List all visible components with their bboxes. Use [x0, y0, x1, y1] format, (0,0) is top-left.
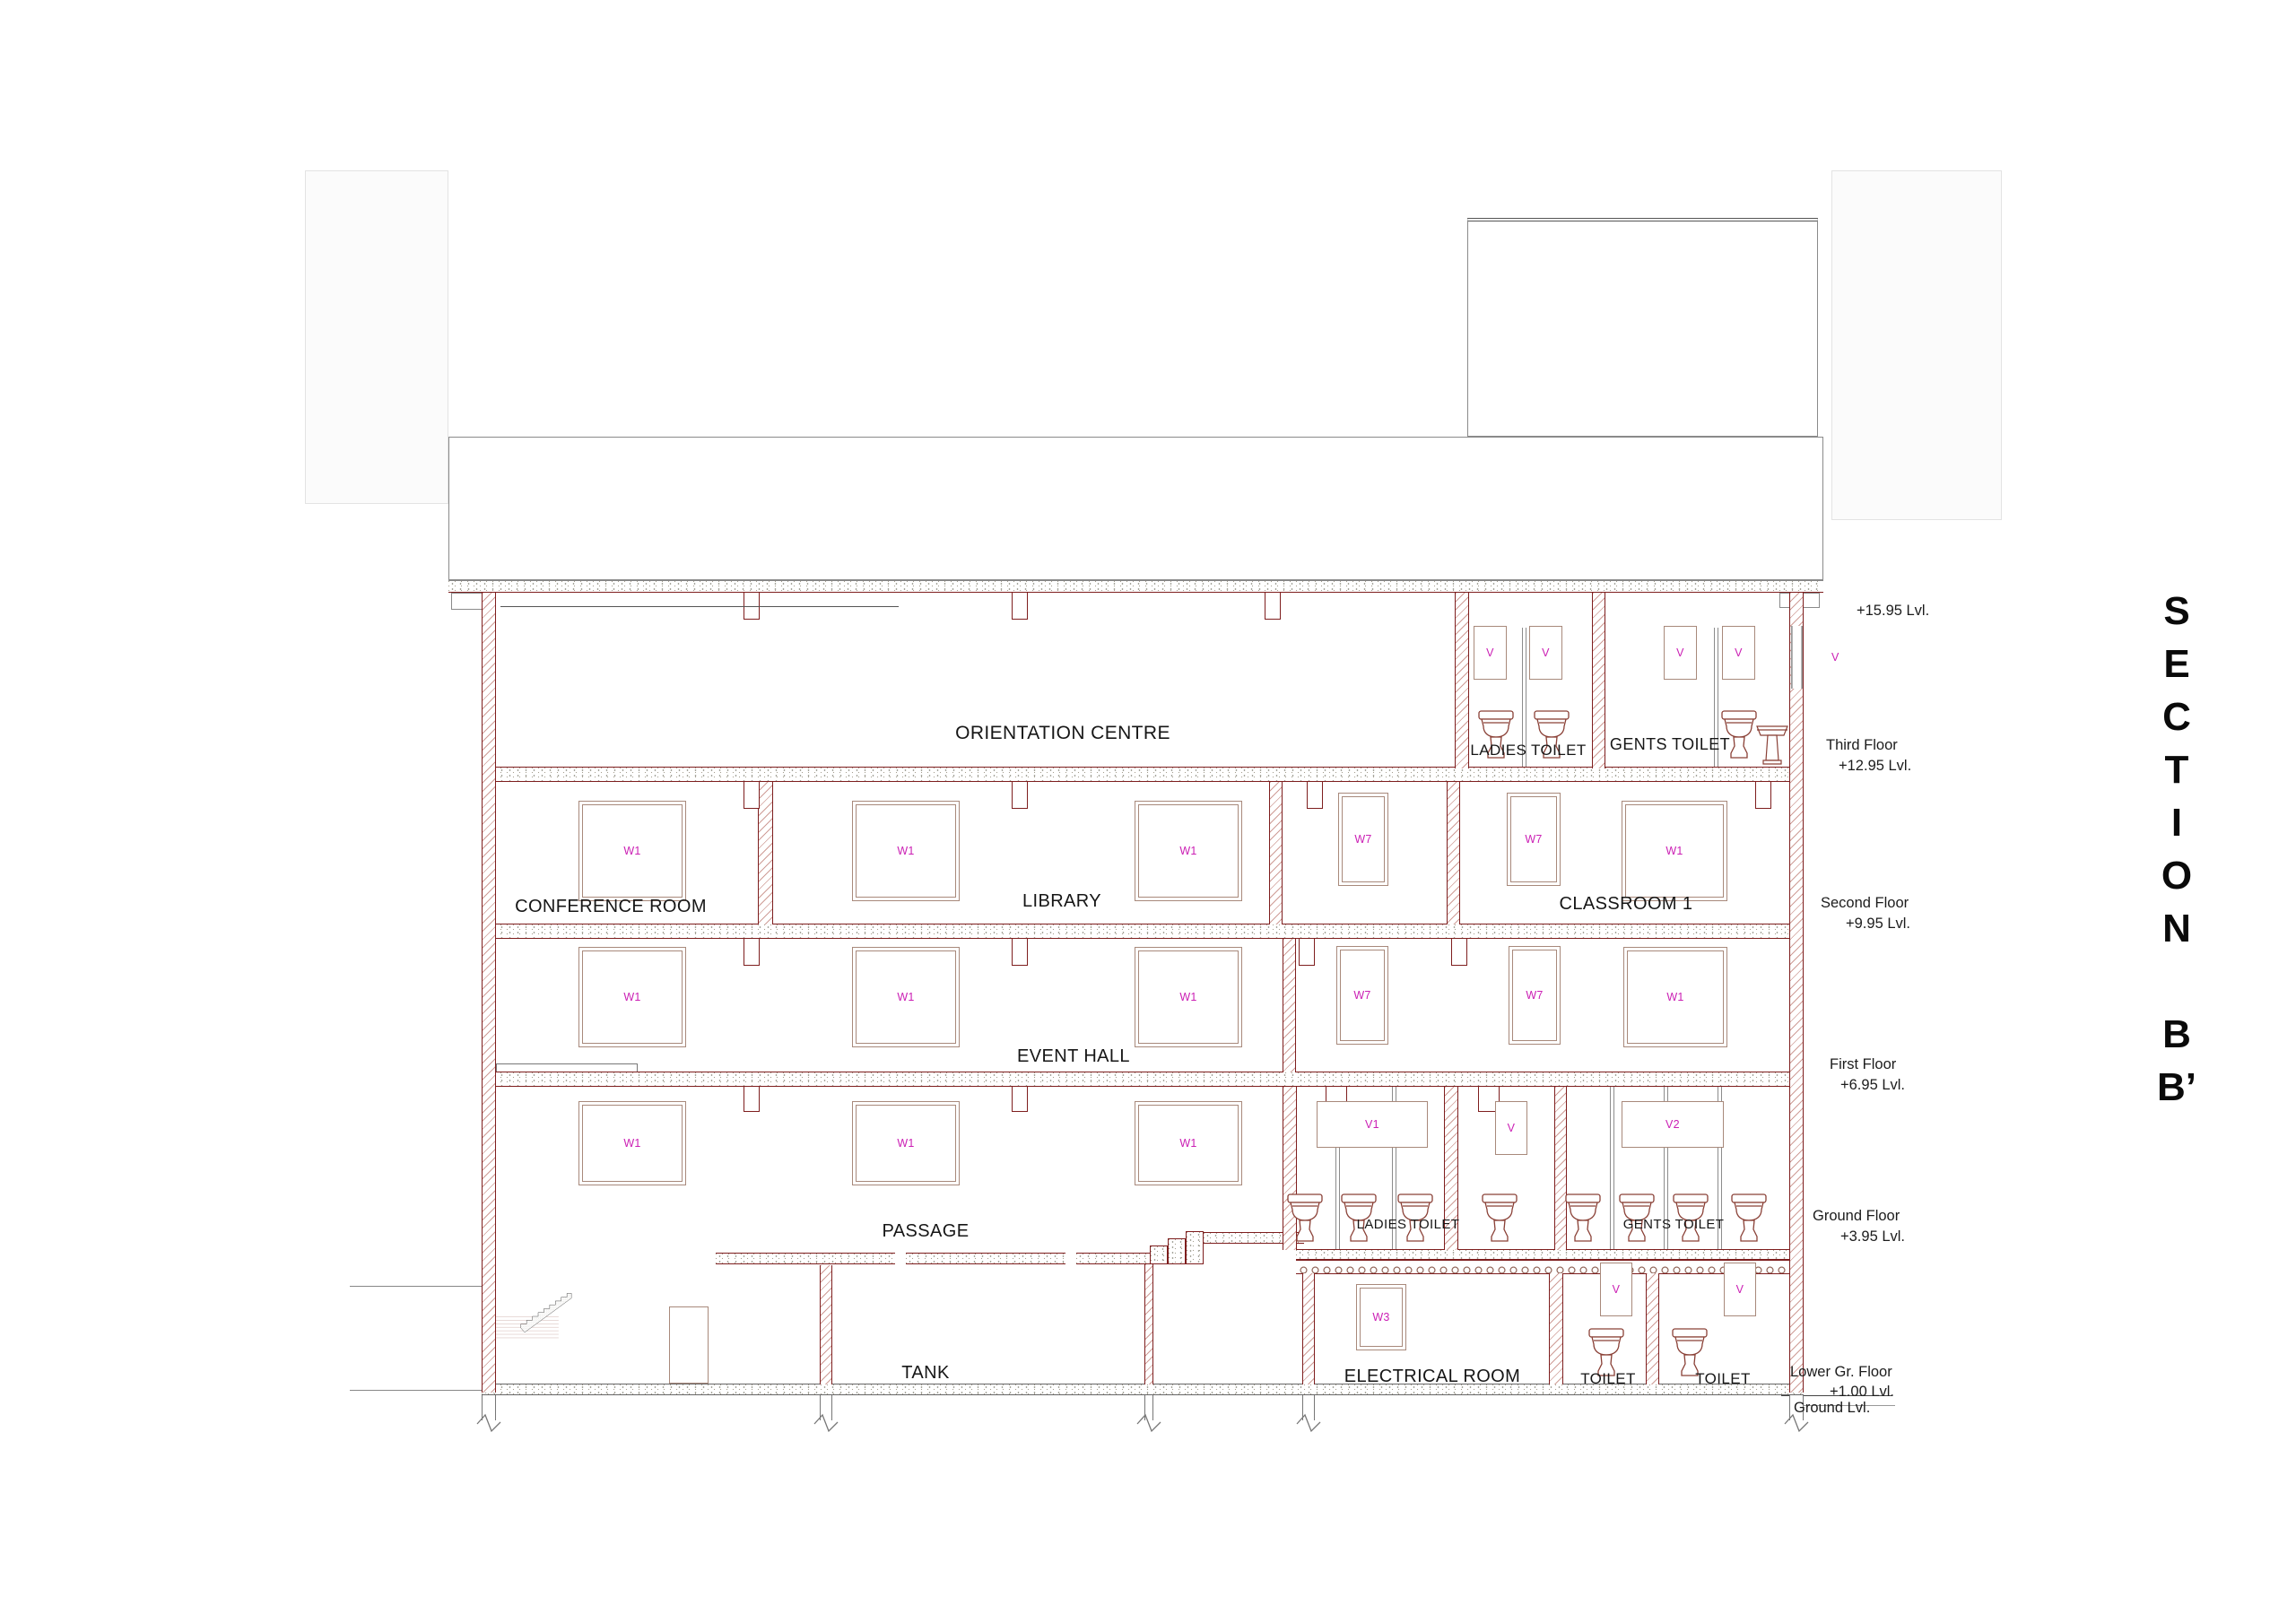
level-label: +6.95 Lvl.: [1840, 1077, 1905, 1094]
washbasin-fixture: [1754, 719, 1790, 766]
floor-slab: [482, 924, 1804, 939]
window-w1: W1: [852, 947, 960, 1047]
section-title-letter: B: [2141, 1008, 2213, 1061]
window-w3: W3: [1356, 1284, 1406, 1350]
floor-slab: [906, 1253, 1065, 1264]
section-title-letter: O: [2141, 849, 2213, 902]
section-title-letter: B’: [2141, 1061, 2213, 1114]
floor-slab: [482, 767, 1804, 782]
window-tag: W3: [1372, 1311, 1389, 1324]
toilet-fixture: [1729, 1192, 1769, 1249]
window-tag: W1: [897, 1137, 914, 1150]
level-label: +1.00 Lvl.: [1830, 1384, 1894, 1401]
ventilator-tag: V: [1831, 651, 1839, 664]
room-label: ELECTRICAL ROOM: [1344, 1367, 1520, 1387]
window-w7: W7: [1338, 793, 1388, 886]
partition: [1610, 1087, 1614, 1249]
room-label: CONFERENCE ROOM: [515, 897, 707, 917]
window-w7: W7: [1509, 946, 1561, 1045]
section-title-letter: I: [2141, 796, 2213, 849]
section-title-letter: E: [2141, 638, 2213, 690]
ceiling-beam: [1299, 939, 1315, 966]
window-w1: W1: [1135, 947, 1242, 1047]
room-label: TANK: [901, 1363, 949, 1384]
level-label: Second Floor: [1821, 895, 1909, 912]
wall: [1269, 782, 1283, 924]
ceiling-beam: [1012, 1087, 1028, 1112]
window-tag: W1: [897, 845, 914, 857]
section-drawing-canvas: W1W1W1W7W7W1W1W1W1W7W7W1W1W1W1VVVVV1VV2W…: [0, 0, 2296, 1623]
window-v1: V1: [1317, 1101, 1428, 1148]
wall: [820, 1265, 832, 1384]
level-label: Ground Lvl.: [1794, 1400, 1870, 1417]
wall: [1646, 1273, 1659, 1384]
ceiling-beam: [1307, 782, 1323, 809]
window-tag: W1: [623, 845, 640, 857]
level-label: +15.95 Lvl.: [1857, 603, 1929, 620]
window-w1: W1: [852, 1101, 960, 1185]
floor-slab: [1076, 1253, 1150, 1264]
wall: [1283, 939, 1296, 1072]
ceiling-beam: [1012, 593, 1028, 620]
window-tag: W1: [1179, 845, 1196, 857]
window-tag: W7: [1526, 989, 1543, 1002]
window-v: V: [1495, 1101, 1527, 1155]
window-tag: V: [1486, 647, 1494, 659]
floor-slab: [482, 1072, 1804, 1087]
wall: [1455, 593, 1469, 768]
level-label: Lower Gr. Floor: [1790, 1364, 1892, 1381]
reference-line: [350, 1390, 482, 1391]
window-tag: V: [1508, 1122, 1516, 1134]
wall: [1592, 593, 1605, 768]
parapet-return-left: [451, 593, 484, 610]
window-tag: V: [1735, 647, 1743, 659]
floor-slab: [1150, 1245, 1168, 1264]
background-mass: [305, 170, 448, 504]
ceiling-beam: [1265, 593, 1281, 620]
level-label: +3.95 Lvl.: [1840, 1228, 1905, 1245]
window-w1: W1: [1623, 947, 1727, 1047]
under-stair-door: [669, 1306, 709, 1384]
ceiling-beam: [1451, 939, 1467, 966]
window-tag: W1: [623, 991, 640, 1003]
floor-slab: [1168, 1238, 1186, 1264]
window-v: V: [1724, 1263, 1756, 1316]
window-tag: V: [1542, 647, 1550, 659]
window-w1: W1: [578, 947, 686, 1047]
floor-slab: [716, 1253, 895, 1264]
roof-parapet-band: [448, 437, 1823, 580]
ceiling-beam: [1012, 782, 1028, 809]
window-w7: W7: [1336, 946, 1388, 1045]
ceiling-beam: [1012, 939, 1028, 966]
ceiling-beam: [1755, 782, 1771, 809]
room-label: GENTS TOILET: [1610, 735, 1730, 754]
window-w1: W1: [1622, 801, 1727, 901]
window-tag: V1: [1365, 1118, 1379, 1131]
wall-ventilator: [1791, 626, 1803, 689]
room-label: LIBRARY: [1022, 891, 1101, 912]
window-tag: W7: [1353, 989, 1370, 1002]
window-tag: W1: [1666, 991, 1683, 1003]
wall: [482, 593, 496, 1393]
toilet-fixture: [1563, 1192, 1603, 1249]
section-title-letter: N: [2141, 902, 2213, 955]
window-w1: W1: [852, 801, 960, 901]
section-title-letter: T: [2141, 743, 2213, 796]
window-v: V: [1722, 626, 1755, 680]
break-symbol: [1295, 1413, 1322, 1433]
room-label: TOILET: [1580, 1370, 1636, 1388]
staircase: [484, 1242, 753, 1390]
ceiling-beam: [744, 1087, 760, 1112]
floor-slab: [448, 580, 1823, 593]
window-tag: V: [1736, 1283, 1744, 1296]
ceiling-beam: [744, 939, 760, 966]
toilet-fixture: [1480, 1192, 1519, 1249]
window-w7: W7: [1507, 793, 1561, 886]
wall: [1789, 593, 1804, 1393]
toilet-fixture: [1285, 1192, 1325, 1249]
room-label: ORIENTATION CENTRE: [955, 723, 1170, 744]
window-tag: W7: [1525, 833, 1542, 846]
window-tag: W1: [1665, 845, 1683, 857]
window-w1: W1: [1135, 801, 1242, 901]
section-title-letter: C: [2141, 690, 2213, 743]
room-label: LADIES TOILET: [1470, 742, 1586, 759]
level-label: First Floor: [1830, 1056, 1896, 1073]
window-v: V: [1474, 626, 1507, 680]
break-symbol: [1135, 1413, 1162, 1433]
break-symbol: [475, 1413, 502, 1433]
section-title-letter: S: [2141, 585, 2213, 638]
window-tag: W7: [1354, 833, 1371, 846]
window-tag: V: [1613, 1283, 1621, 1296]
level-label: Ground Floor: [1813, 1208, 1900, 1225]
reference-line: [500, 606, 899, 607]
floor-slab: [1186, 1231, 1204, 1264]
background-mass: [1831, 170, 2002, 520]
window-v: V: [1600, 1263, 1632, 1316]
room-label: LADIES TOILET: [1357, 1217, 1460, 1232]
room-label: GENTS TOILET: [1623, 1217, 1725, 1232]
window-tag: V2: [1665, 1118, 1680, 1131]
stair-flight: [521, 1293, 571, 1332]
reference-line: [350, 1286, 482, 1287]
room-label: PASSAGE: [883, 1221, 970, 1242]
break-symbol: [813, 1413, 839, 1433]
window-tag: W1: [623, 1137, 640, 1150]
room-label: CLASSROOM 1: [1560, 894, 1693, 915]
wall: [1447, 782, 1460, 924]
window-w1: W1: [578, 801, 686, 901]
window-v2: V2: [1622, 1101, 1724, 1148]
wall: [1549, 1273, 1563, 1384]
level-label: +12.95 Lvl.: [1839, 758, 1911, 775]
window-tag: W1: [897, 991, 914, 1003]
level-label: +9.95 Lvl.: [1846, 916, 1910, 933]
window-v: V: [1529, 626, 1562, 680]
rooftop-box: [1467, 218, 1818, 437]
floor-slab: [1296, 1249, 1804, 1260]
window-w1: W1: [578, 1101, 686, 1185]
ceiling-beam: [744, 782, 760, 809]
room-label: TOILET: [1695, 1370, 1751, 1388]
window-v: V: [1664, 626, 1697, 680]
wall: [1302, 1273, 1315, 1384]
wall: [1144, 1264, 1153, 1384]
level-label: Third Floor: [1826, 737, 1898, 754]
wall: [758, 782, 773, 924]
window-w1: W1: [1135, 1101, 1242, 1185]
window-tag: V: [1676, 647, 1684, 659]
room-label: EVENT HALL: [1017, 1046, 1130, 1067]
window-tag: W1: [1179, 1137, 1196, 1150]
window-tag: W1: [1179, 991, 1196, 1003]
